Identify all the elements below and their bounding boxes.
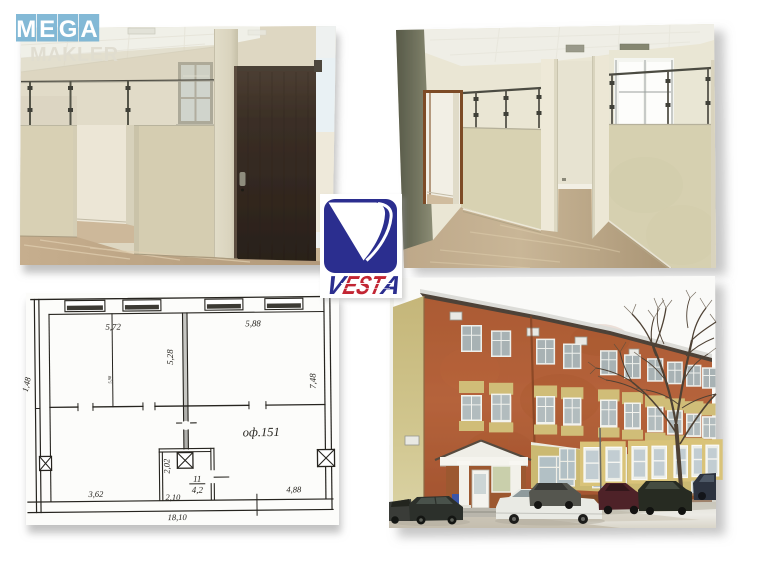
svg-text:4,88: 4,88 xyxy=(286,484,302,494)
svg-text:5,28: 5,28 xyxy=(165,349,175,365)
svg-text:4,2: 4,2 xyxy=(192,485,204,495)
svg-text:оф.151: оф.151 xyxy=(243,425,280,439)
svg-text:11: 11 xyxy=(193,474,201,484)
svg-text:7,48: 7,48 xyxy=(308,373,318,389)
svg-text:5,88: 5,88 xyxy=(245,318,261,328)
svg-text:E: E xyxy=(39,16,55,43)
svg-text:2,02: 2,02 xyxy=(162,458,172,474)
svg-text:2,10: 2,10 xyxy=(165,492,181,502)
svg-text:M: M xyxy=(16,16,36,43)
svg-text:18,10: 18,10 xyxy=(168,512,188,522)
svg-text:3,62: 3,62 xyxy=(87,489,104,499)
svg-text:5,72: 5,72 xyxy=(105,322,121,332)
svg-text:MAKLER: MAKLER xyxy=(30,44,119,66)
svg-text:G: G xyxy=(59,16,78,43)
svg-text:A: A xyxy=(80,16,97,43)
